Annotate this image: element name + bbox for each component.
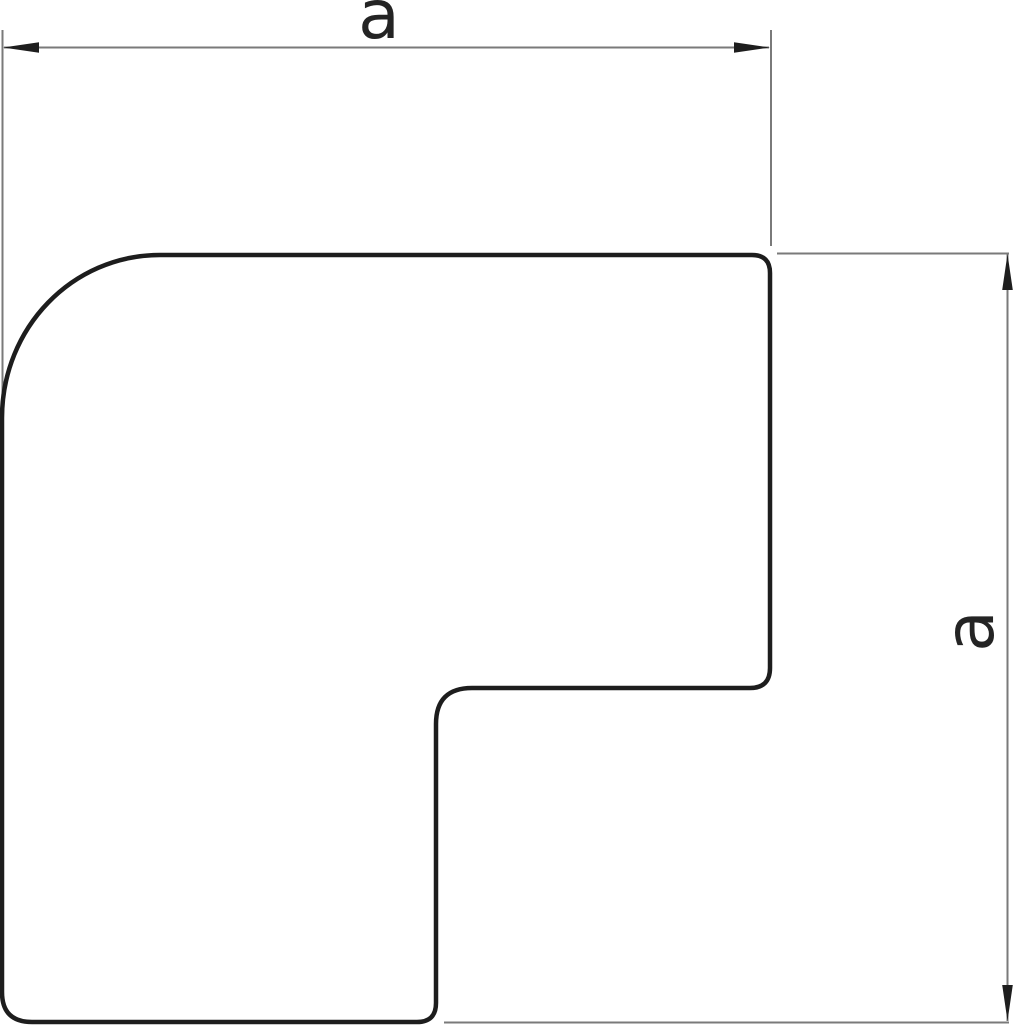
arrow-right-icon bbox=[734, 42, 770, 53]
dimension-drawing-svg bbox=[0, 0, 1024, 1026]
arrow-up-icon bbox=[1002, 254, 1013, 290]
width-dimension-label: a bbox=[358, 0, 400, 50]
height-dimension-label: a bbox=[937, 610, 1005, 652]
technical-drawing-canvas: a a bbox=[0, 0, 1024, 1026]
angle-piece-outline bbox=[2, 255, 770, 1022]
arrow-left-icon bbox=[3, 42, 39, 53]
arrow-down-icon bbox=[1002, 985, 1013, 1021]
